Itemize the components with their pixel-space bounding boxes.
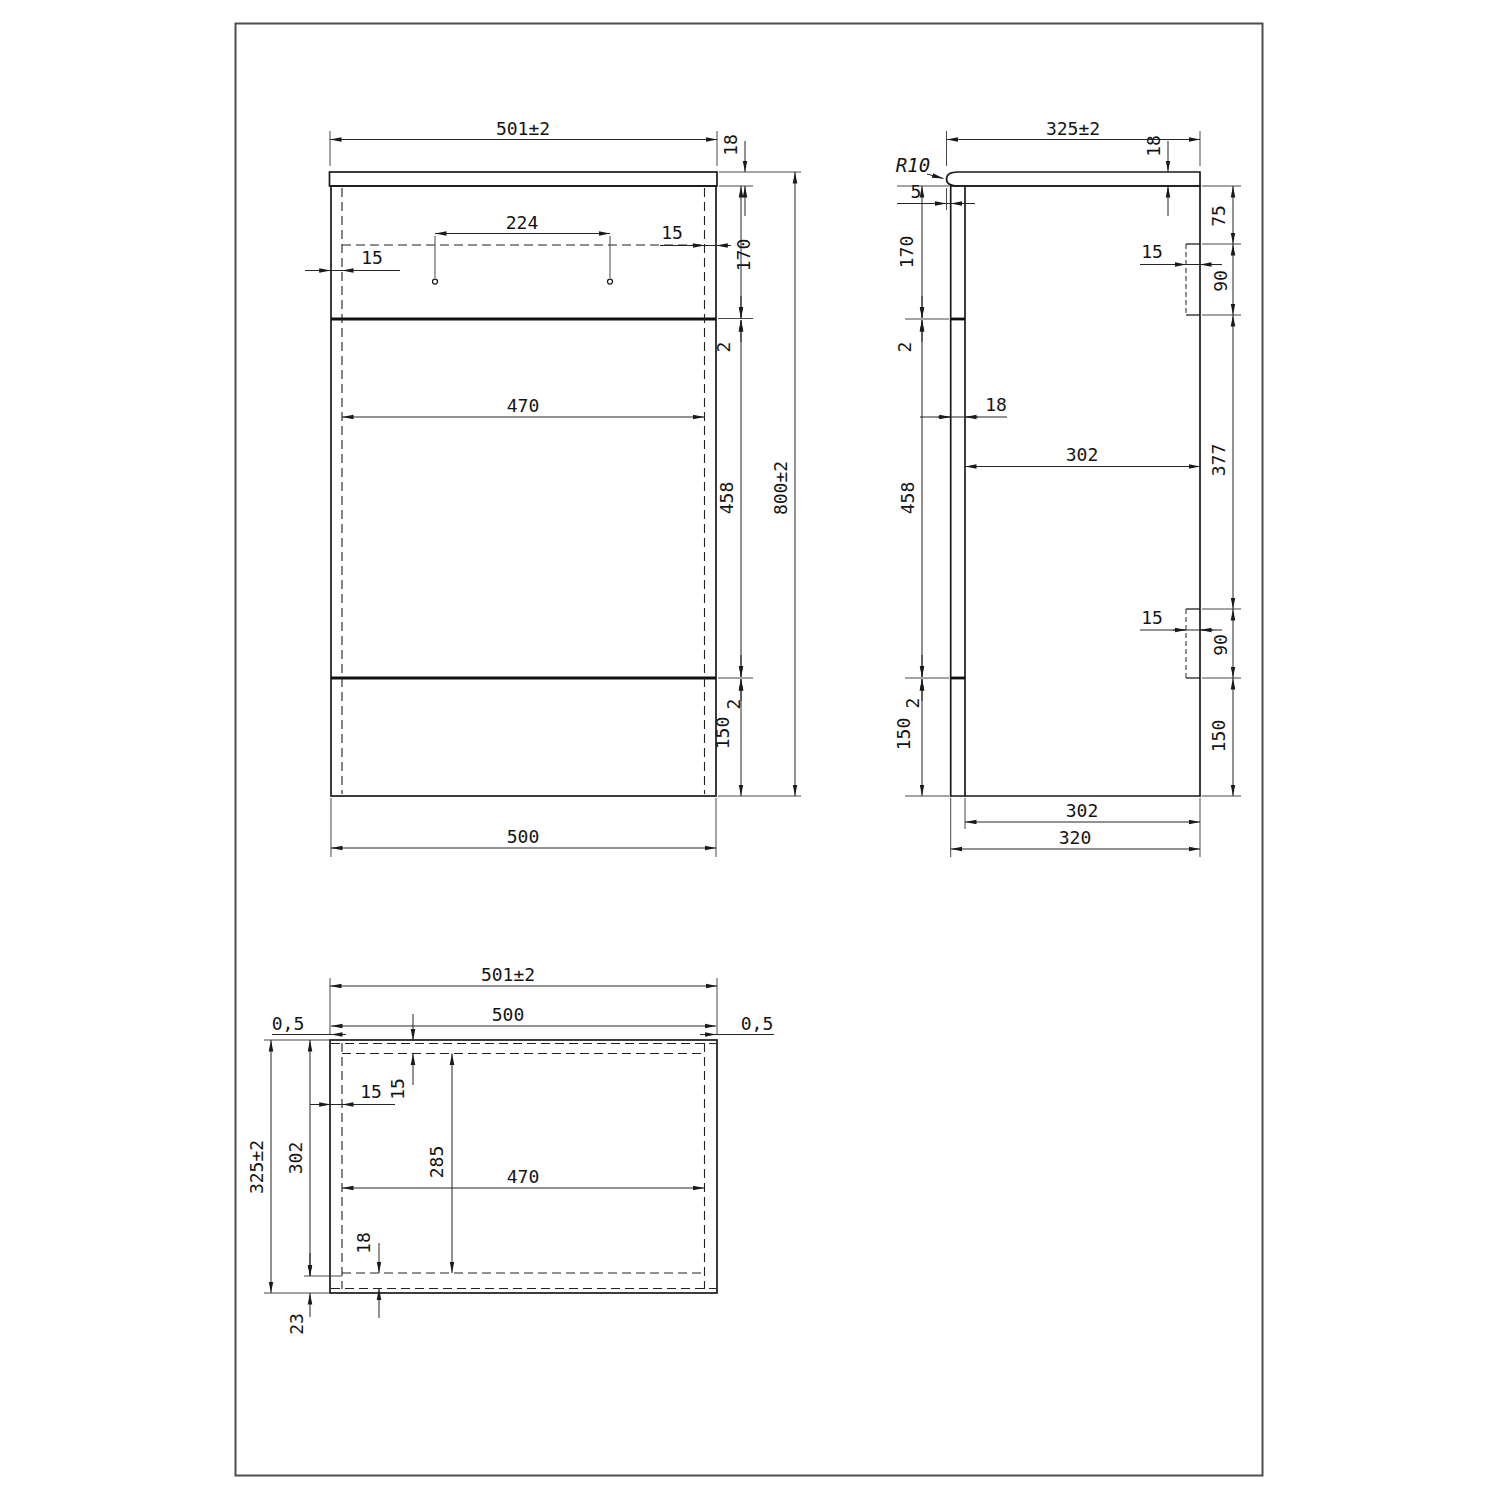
dim-front-drawer-height: 170 [733,239,754,272]
dim-front-gap-top: 2 [713,342,734,353]
handle-hole-left [433,279,438,284]
dim-side-body-depth: 320 [1059,827,1092,848]
side-view: 325±2 18 R10 5 170 2 458 2 150 18 [893,118,1242,857]
dim-bracket-offset-top: 75 [1208,205,1229,227]
plan-view: 501±2 500 0,5 0,5 15 15 325±2 302 23 18 [246,964,775,1335]
dim-plan-overall-depth: 325±2 [246,1140,267,1194]
cabinet-drawing: 501±2 18 224 15 15 170 2 458 2 150 [0,0,1500,1500]
dim-plan-inner-depth: 285 [426,1146,447,1179]
dim-side-overhang: 5 [911,181,922,202]
dim-front-side-panel: 15 [361,247,383,268]
dim-bracket-width-top: 15 [1141,241,1163,262]
dim-plan-inner-depth-front: 302 [285,1142,306,1175]
dim-side-overall-depth: 325±2 [1046,118,1100,139]
dim-plan-overhang-left: 0,5 [272,1013,305,1034]
dim-front-door-height: 458 [716,482,737,515]
front-view: 501±2 18 224 15 15 170 2 458 2 150 [305,118,801,857]
handle-hole-right [608,279,613,284]
side-countertop [947,172,1201,186]
dim-front-body-width: 500 [507,826,540,847]
dim-side-gap-bottom: 2 [902,698,923,709]
dim-side-gap-top: 2 [894,342,915,353]
dim-side-drawer-height: 170 [896,236,917,269]
dim-plan-overall-width: 501±2 [481,964,535,985]
dim-bracket-width-bottom: 15 [1141,607,1163,628]
dim-side-door-height: 458 [897,482,918,515]
dim-plan-body-width: 500 [492,1004,525,1025]
dim-side-plinth-back: 150 [1208,720,1229,753]
dim-bracket-span: 377 [1208,444,1229,477]
dim-plan-overhang-right: 0,5 [741,1013,774,1034]
dim-side-top-thickness: 18 [1143,135,1164,157]
dim-front-overall-width: 501±2 [496,118,550,139]
dim-bracket-height-top: 90 [1210,270,1231,292]
dim-corner-radius: R10 [896,154,930,176]
dim-side-inner-depth-bottom: 302 [1066,800,1099,821]
dim-plan-back-thickness: 18 [353,1232,374,1254]
dim-handle-side-offset: 15 [661,222,683,243]
dim-bracket-height-bottom: 90 [1210,634,1231,656]
dim-front-inner-width: 470 [507,395,540,416]
dim-front-plinth: 150 [712,717,733,750]
dim-plan-back-offset: 23 [286,1313,307,1335]
dim-plan-front-rail: 15 [387,1078,408,1100]
front-body [331,186,716,796]
front-countertop [330,172,718,186]
dim-side-inner-depth: 302 [1066,444,1099,465]
dim-handle-spacing: 224 [506,212,539,233]
dim-plan-inner-width: 470 [507,1166,540,1187]
technical-drawing-page: 501±2 18 224 15 15 170 2 458 2 150 [0,0,1500,1500]
dim-plan-side-panel: 15 [360,1081,382,1102]
dim-front-overall-height: 800±2 [770,461,791,515]
dim-front-top-thickness: 18 [720,134,741,156]
dim-side-plinth-front: 150 [893,718,914,751]
dim-side-front-thickness: 18 [985,394,1007,415]
